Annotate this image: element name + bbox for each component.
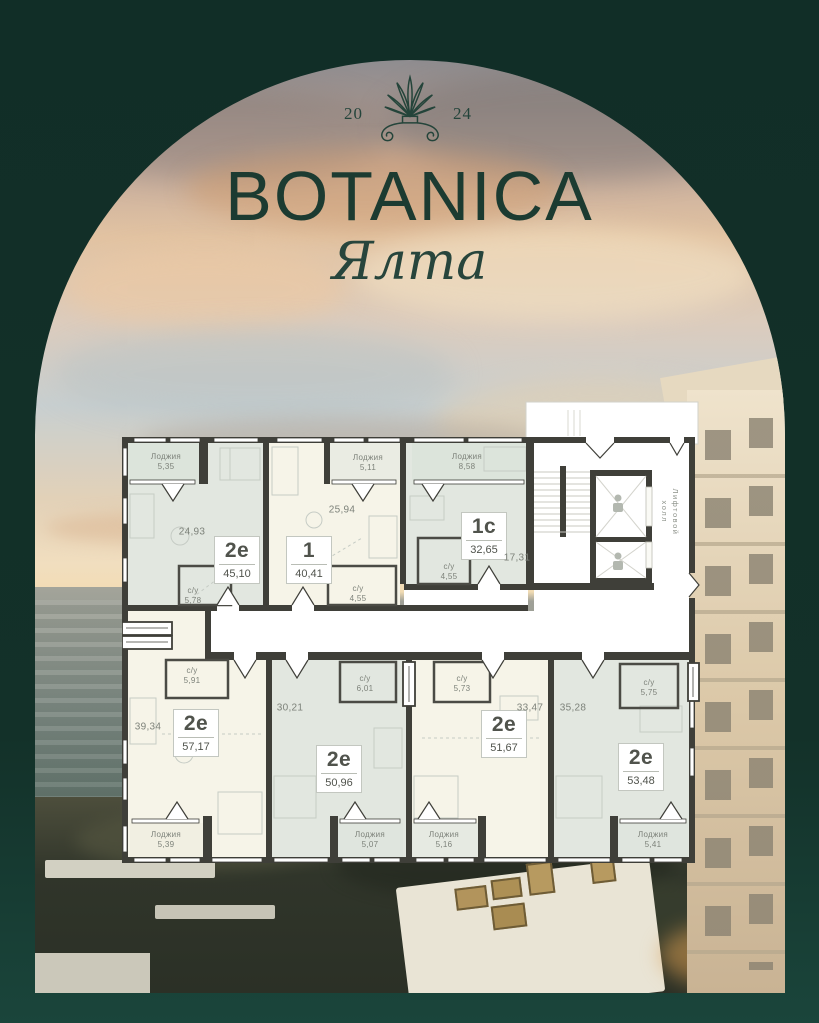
building-small	[35, 953, 150, 993]
loggia-fill	[618, 823, 688, 857]
loggia-fill	[338, 823, 403, 857]
loggia-fill	[412, 443, 528, 480]
year-left: 20	[344, 104, 363, 124]
roof-vent	[454, 885, 488, 911]
brand-title: BOTANICA	[0, 156, 819, 236]
floor-plan	[122, 398, 700, 865]
brand-subtitle: Ялта	[0, 232, 819, 292]
roof-vent	[491, 902, 528, 930]
loggia-fill	[412, 823, 478, 857]
building-facade	[687, 390, 785, 993]
palmette-ornament-icon	[368, 70, 452, 144]
roof-vent	[526, 861, 556, 896]
loggia-fill	[130, 823, 203, 857]
corridor-fill	[211, 611, 695, 652]
loggia-fill	[128, 443, 199, 480]
building-small	[155, 905, 275, 919]
loggia-fill	[330, 443, 400, 480]
roof-vent	[491, 877, 523, 901]
year-right: 24	[453, 104, 472, 124]
building-floor-lines	[687, 410, 785, 970]
poster: 20 24 BOTANICA Ялта	[0, 0, 819, 1023]
